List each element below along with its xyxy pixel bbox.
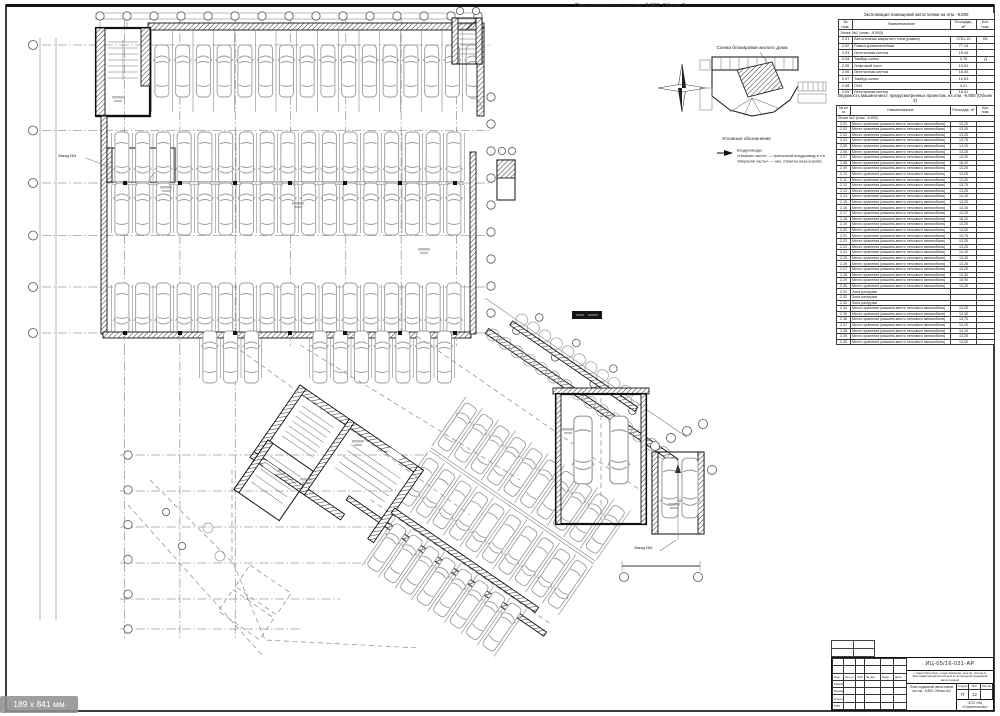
entry-ramp: [652, 452, 704, 540]
duct-arrow-icon: [724, 150, 733, 156]
title-block: Изм.Кол.уч.Лист№ док.Подп.ДатаРазраб.Про…: [831, 657, 994, 711]
dashed-stalls: [218, 565, 291, 639]
exterior-wall-left: [101, 116, 107, 334]
parking-schedule-table: Ведомость машино-мест, предусмотренных п…: [836, 94, 994, 345]
legend-heading: Воздуховоды:: [737, 148, 763, 153]
sheet-number: 12: [969, 690, 981, 699]
wall-bottom: [103, 332, 471, 338]
parking-schedule-title: Ведомость машино-мест, предусмотренных п…: [836, 94, 994, 104]
entry2-label: Заезд №2: [634, 545, 653, 550]
stage-value: П: [957, 690, 969, 699]
key-plan-title: Схема блокировки жилого дома: [716, 45, 787, 51]
exterior-wall-right-lower: [470, 152, 476, 334]
sheet-title: План подземной автостоянки на отм. -9.80…: [907, 684, 957, 710]
key-plan: Схема блокировки жилого дома: [658, 45, 826, 116]
sheets-total: [981, 690, 993, 699]
legend-line1: «Нижняя часть» — приточный воздуховод в …: [737, 153, 825, 158]
exterior-wall-top: [148, 23, 484, 30]
cars-band4: [311, 331, 453, 383]
room-schedule-title: Экспликация помещений автостоянки на отм…: [838, 13, 994, 18]
legend-title: Условные обозначения: [722, 136, 771, 141]
axis-bubbles-left-lower: [124, 451, 132, 633]
shaft-midright: [497, 147, 516, 200]
cars-band2a: [113, 132, 462, 184]
organization-name: ООО «НЦ «Строительство»: [957, 700, 993, 710]
size-badge: 189 x 841 мм: [0, 696, 78, 713]
drawing-title: План автостоянки на отм. -9.800. Объем 2: [505, 3, 755, 9]
document-code: ИЦ-05/16-031-АР: [907, 658, 993, 671]
cars-band3: [113, 283, 462, 335]
project-address: г. Санкт-Петербург, улица Типанова, дом …: [907, 671, 993, 684]
title-block-signatures: Изм.Кол.уч.Лист№ док.Подп.ДатаРазраб.Про…: [832, 658, 907, 710]
approval-table: [831, 640, 875, 656]
stage-sheet-grid: Стадия Лист Листов П 12: [957, 684, 993, 700]
axis-bubbles-top: [96, 12, 482, 20]
grid-lines-vertical-lower: [125, 346, 236, 638]
legend-line2: «Верхняя часть» — низ. отметка низа коро…: [737, 159, 822, 164]
compass-icon: [658, 64, 706, 112]
drawing-sheet: Схема блокировки жилого дома: [0, 0, 1000, 716]
legend: Условные обозначения Воздуховоды: «Нижня…: [717, 136, 825, 164]
axis-bubbles-right: [487, 93, 495, 317]
cars-band4b: [201, 331, 260, 383]
key-plan-footprint: [700, 57, 826, 116]
axis-bubbles-left: [29, 41, 38, 338]
entry1-label: Заезд №1: [58, 153, 77, 158]
stair-core-topleft: [96, 28, 150, 116]
